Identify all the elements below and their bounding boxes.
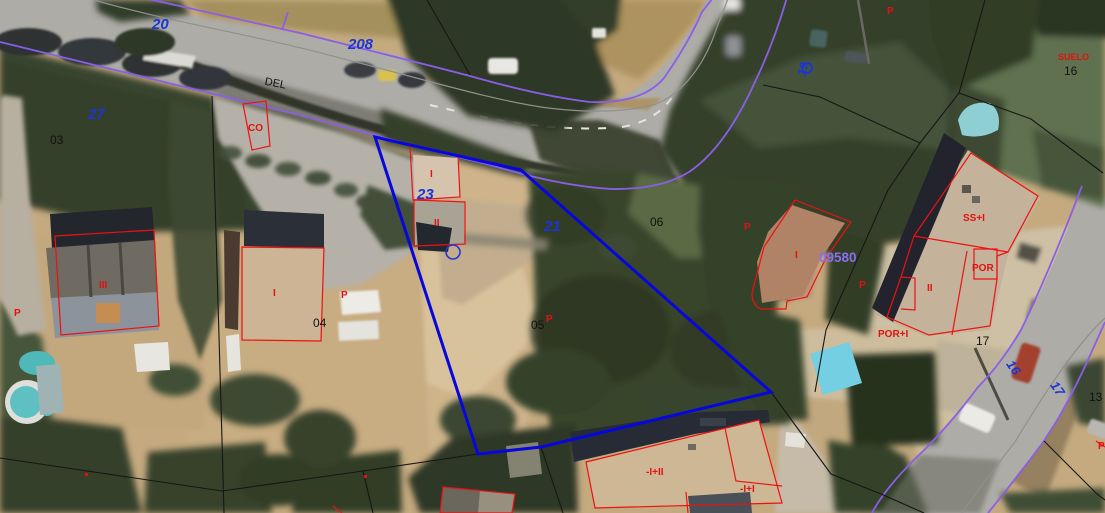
svg-text:P: P <box>1098 441 1105 452</box>
svg-text:04: 04 <box>313 316 327 330</box>
svg-text:SS+I: SS+I <box>963 213 985 224</box>
svg-text:13: 13 <box>1089 390 1103 404</box>
svg-text:05: 05 <box>531 318 545 332</box>
svg-text:09580: 09580 <box>819 250 857 265</box>
svg-text:III: III <box>99 280 108 291</box>
svg-text:P: P <box>859 280 866 291</box>
svg-text:II: II <box>927 283 933 294</box>
svg-text:POR: POR <box>972 263 994 274</box>
svg-text:-I+II: -I+II <box>646 467 664 478</box>
svg-text:I: I <box>430 169 433 180</box>
svg-text:03: 03 <box>50 133 64 147</box>
svg-text:I: I <box>795 250 798 261</box>
svg-text:II: II <box>434 218 440 229</box>
svg-text:-I+I: -I+I <box>740 484 755 495</box>
svg-text:17: 17 <box>976 334 990 348</box>
svg-text:I: I <box>273 288 276 299</box>
svg-text:20: 20 <box>151 16 169 33</box>
svg-text:208: 208 <box>347 36 374 53</box>
svg-text:POR+I: POR+I <box>878 329 909 340</box>
svg-text:27: 27 <box>87 106 105 123</box>
svg-text:SUELO: SUELO <box>1058 52 1089 62</box>
svg-text:P: P <box>887 6 894 17</box>
svg-text:P: P <box>546 314 553 325</box>
svg-text:CO: CO <box>248 123 263 134</box>
svg-text:P: P <box>744 222 751 233</box>
svg-text:06: 06 <box>650 215 664 229</box>
svg-text:P: P <box>341 290 348 301</box>
svg-text:23: 23 <box>416 186 434 203</box>
svg-text:P: P <box>14 308 21 319</box>
svg-text:16: 16 <box>1064 64 1078 78</box>
svg-text:21: 21 <box>543 218 561 235</box>
